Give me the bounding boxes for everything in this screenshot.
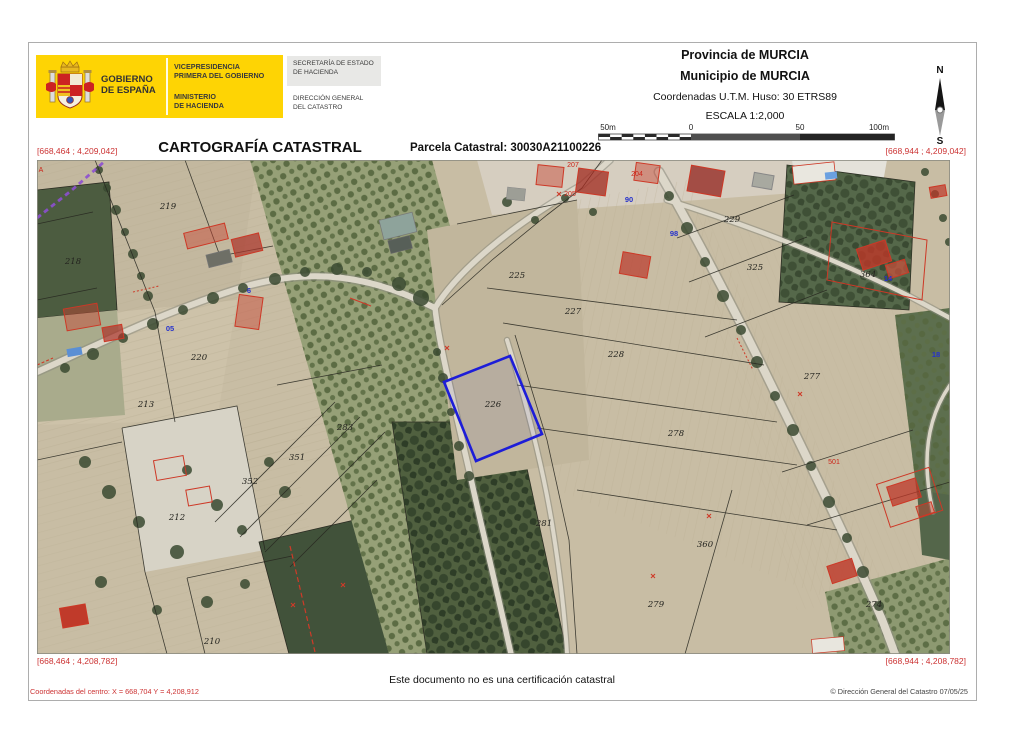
street-number-label: 6 — [247, 286, 251, 295]
red-label: 501 — [828, 459, 840, 466]
parcel-label: 210 — [203, 637, 221, 647]
street-number-label: 90 — [625, 195, 633, 204]
gobierno-line1: GOBIERNO — [101, 74, 153, 85]
parcel-label: 212 — [168, 513, 185, 523]
secretaria-estado-label: SECRETARÍA DE ESTADO DE HACIENDA — [287, 56, 381, 86]
center-coordinates-text: Coordenadas del centro: X = 668,704 Y = … — [30, 687, 199, 696]
street-number-label: 05 — [166, 324, 174, 333]
map-scale-bar: 50m 0 50 100m — [598, 122, 898, 144]
parcel-label: 325 — [747, 263, 763, 273]
parcel-label: 278 — [667, 429, 685, 439]
compass-s-label: S — [937, 136, 944, 146]
parcel-label: 352 — [242, 477, 258, 487]
corner-coord-bottom-left: [668,464 ; 4,208,782] — [37, 656, 117, 666]
parcel-reference: Parcela Catastral: 30030A21100226 — [410, 142, 601, 154]
red-label: 204 — [631, 171, 643, 178]
parcel-label: 364 — [860, 270, 876, 280]
red-label: 205 — [564, 191, 576, 198]
parcel-label: 228 — [607, 350, 625, 360]
parcel-label: 220 — [190, 353, 208, 363]
corner-coord-top-right: [668,944 ; 4,209,042] — [886, 146, 966, 156]
disclaimer-text: Este documento no es una certificación c… — [28, 674, 976, 686]
parcel-label: 274 — [865, 600, 882, 610]
vicepresidencia-label: VICEPRESIDENCIA PRIMERA DEL GOBIERNO — [174, 62, 264, 80]
direccion-general-label: DIRECCIÓN GENERAL DEL CATASTRO — [287, 95, 381, 112]
street-number-label: 18 — [932, 350, 940, 359]
gobierno-line2: DE ESPAÑA — [101, 85, 156, 96]
corner-coord-bottom-right: [668,944 ; 4,208,782] — [886, 656, 966, 666]
parcel-label: 219 — [159, 202, 177, 212]
cadastral-map: 218 219 220 213 212 210 283 351 352 226 … — [37, 160, 950, 654]
compass-n-label: N — [936, 65, 943, 76]
parcel-label: 218 — [64, 257, 82, 267]
parcel-label-highlighted: 226 — [484, 400, 502, 410]
parcel-label: 281 — [535, 519, 552, 529]
ministerio-label: MINISTERIO DE HACIENDA — [174, 92, 224, 110]
parcel-label: 360 — [697, 540, 714, 550]
scale-tick-100m: 100m — [869, 123, 889, 132]
gobierno-espana-label: GOBIERNO DE ESPAÑA — [101, 74, 165, 96]
parcel-label: 283 — [336, 423, 353, 433]
parcel-label: 279 — [647, 600, 665, 610]
logo-divider — [166, 58, 168, 115]
parcel-label: 227 — [564, 307, 582, 317]
provincia-label: Provincia de MURCIA — [600, 48, 890, 62]
spain-coat-of-arms-icon — [44, 58, 96, 114]
parcel-label: 351 — [289, 453, 305, 463]
red-label: 207 — [567, 162, 579, 169]
utm-coordinates-label: Coordenadas U.T.M. Huso: 30 ETRS89 — [600, 91, 890, 103]
parcel-label: 229 — [723, 215, 741, 225]
street-number-label: 14 — [884, 274, 893, 283]
copyright-text: © Dirección General del Catastro 07/05/2… — [830, 687, 968, 696]
street-number-label: 98 — [670, 229, 678, 238]
scale-tick-50m: 50m — [600, 123, 616, 132]
north-arrow-icon: N S — [926, 60, 954, 146]
parcel-label: 277 — [803, 372, 821, 382]
corner-coord-top-left: [668,464 ; 4,209,042] — [37, 146, 117, 156]
cadastral-document-page: GOBIERNO DE ESPAÑA VICEPRESIDENCIA PRIME… — [0, 0, 1024, 743]
scale-tick-50: 50 — [796, 123, 805, 132]
red-label: A — [39, 167, 44, 174]
scale-label: ESCALA 1:2,000 — [600, 110, 890, 122]
municipio-label: Municipio de MURCIA — [600, 69, 890, 83]
page-title: CARTOGRAFÍA CATASTRAL — [130, 139, 390, 156]
parcel-label: 213 — [137, 400, 154, 410]
parcel-label: 225 — [508, 271, 525, 281]
scale-tick-0: 0 — [689, 123, 694, 132]
